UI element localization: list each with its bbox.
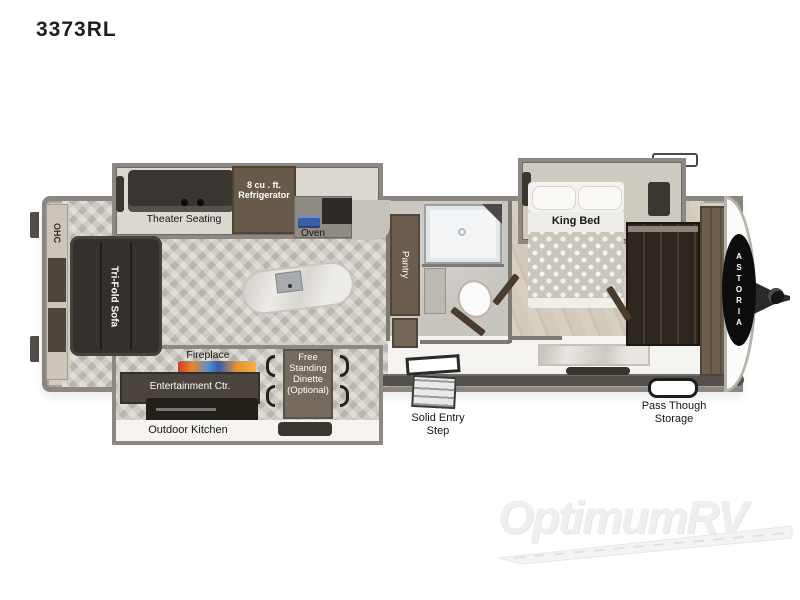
sofa-cushion-seam xyxy=(130,242,132,350)
floorplan-canvas: 3373RL OptimumRV Theater Seating 8 cu . … xyxy=(0,0,800,600)
refrigerator-label: 8 cu . ft. Refrigerator xyxy=(232,180,296,201)
cupholder xyxy=(181,199,188,206)
theater-seating-label: Theater Seating xyxy=(128,213,240,225)
bedroom-bottom-wall xyxy=(512,336,562,340)
wardrobe-shelf xyxy=(628,226,698,232)
rear-bumper-tab xyxy=(30,212,39,238)
outdoor-mat xyxy=(278,422,332,436)
wardrobe xyxy=(626,222,700,346)
bedroom-bench xyxy=(538,344,650,366)
pass-through-storage-door xyxy=(648,378,698,398)
bed-foot xyxy=(528,298,624,308)
entry-platform xyxy=(405,354,460,376)
brand-label: ASTORIA xyxy=(724,240,754,340)
rear-bumper-tab xyxy=(30,336,39,362)
bath-bedroom-wall xyxy=(508,201,512,343)
entertainment-label: Entertainment Ctr. xyxy=(122,381,258,393)
pillow xyxy=(578,186,622,210)
outdoor-kitchen-label: Outdoor Kitchen xyxy=(124,424,252,437)
rear-cabinet-door xyxy=(48,308,66,352)
pass-through-label: Pass Though Storage xyxy=(636,400,712,425)
theater-seating xyxy=(128,170,234,212)
bedroom-window xyxy=(648,182,670,216)
pantry-lower-cabinet xyxy=(392,318,418,348)
oven-unit xyxy=(322,198,352,224)
pantry-label: Pantry xyxy=(392,220,418,310)
island-sink xyxy=(275,270,303,293)
bath-divider-wall xyxy=(422,264,504,267)
king-bed-label: King Bed xyxy=(528,215,624,228)
bath-bottom-wall xyxy=(420,340,510,344)
bedroom-mat xyxy=(566,367,630,375)
faucet xyxy=(288,284,292,288)
watermark-road-graphic xyxy=(492,518,797,566)
ohc-label: OHC xyxy=(46,206,68,260)
outdoor-kitchen-handle xyxy=(156,408,216,411)
bath-vanity xyxy=(424,268,446,314)
hitch-jack xyxy=(768,288,784,304)
rear-cabinet-door xyxy=(48,258,66,302)
cupholder xyxy=(197,199,204,206)
dinette-chair xyxy=(266,385,275,407)
trifold-sofa-label: Tri-Fold Sofa xyxy=(104,244,124,350)
dinette-label: Free Standing Dinette (Optional) xyxy=(283,353,333,397)
dinette-chair xyxy=(266,355,275,377)
sofa-cushion-seam xyxy=(100,242,102,350)
entry-steps xyxy=(411,375,457,409)
counter-end xyxy=(352,200,390,240)
entry-step-label: Solid Entry Step xyxy=(400,412,476,437)
cooktop xyxy=(298,216,320,228)
pillow xyxy=(532,186,576,210)
shower-drain xyxy=(458,228,466,236)
oven-label: Oven xyxy=(292,228,334,240)
model-number: 3373RL xyxy=(36,18,117,42)
fireplace-label: Fireplace xyxy=(168,349,248,361)
slideout-window xyxy=(116,176,124,212)
